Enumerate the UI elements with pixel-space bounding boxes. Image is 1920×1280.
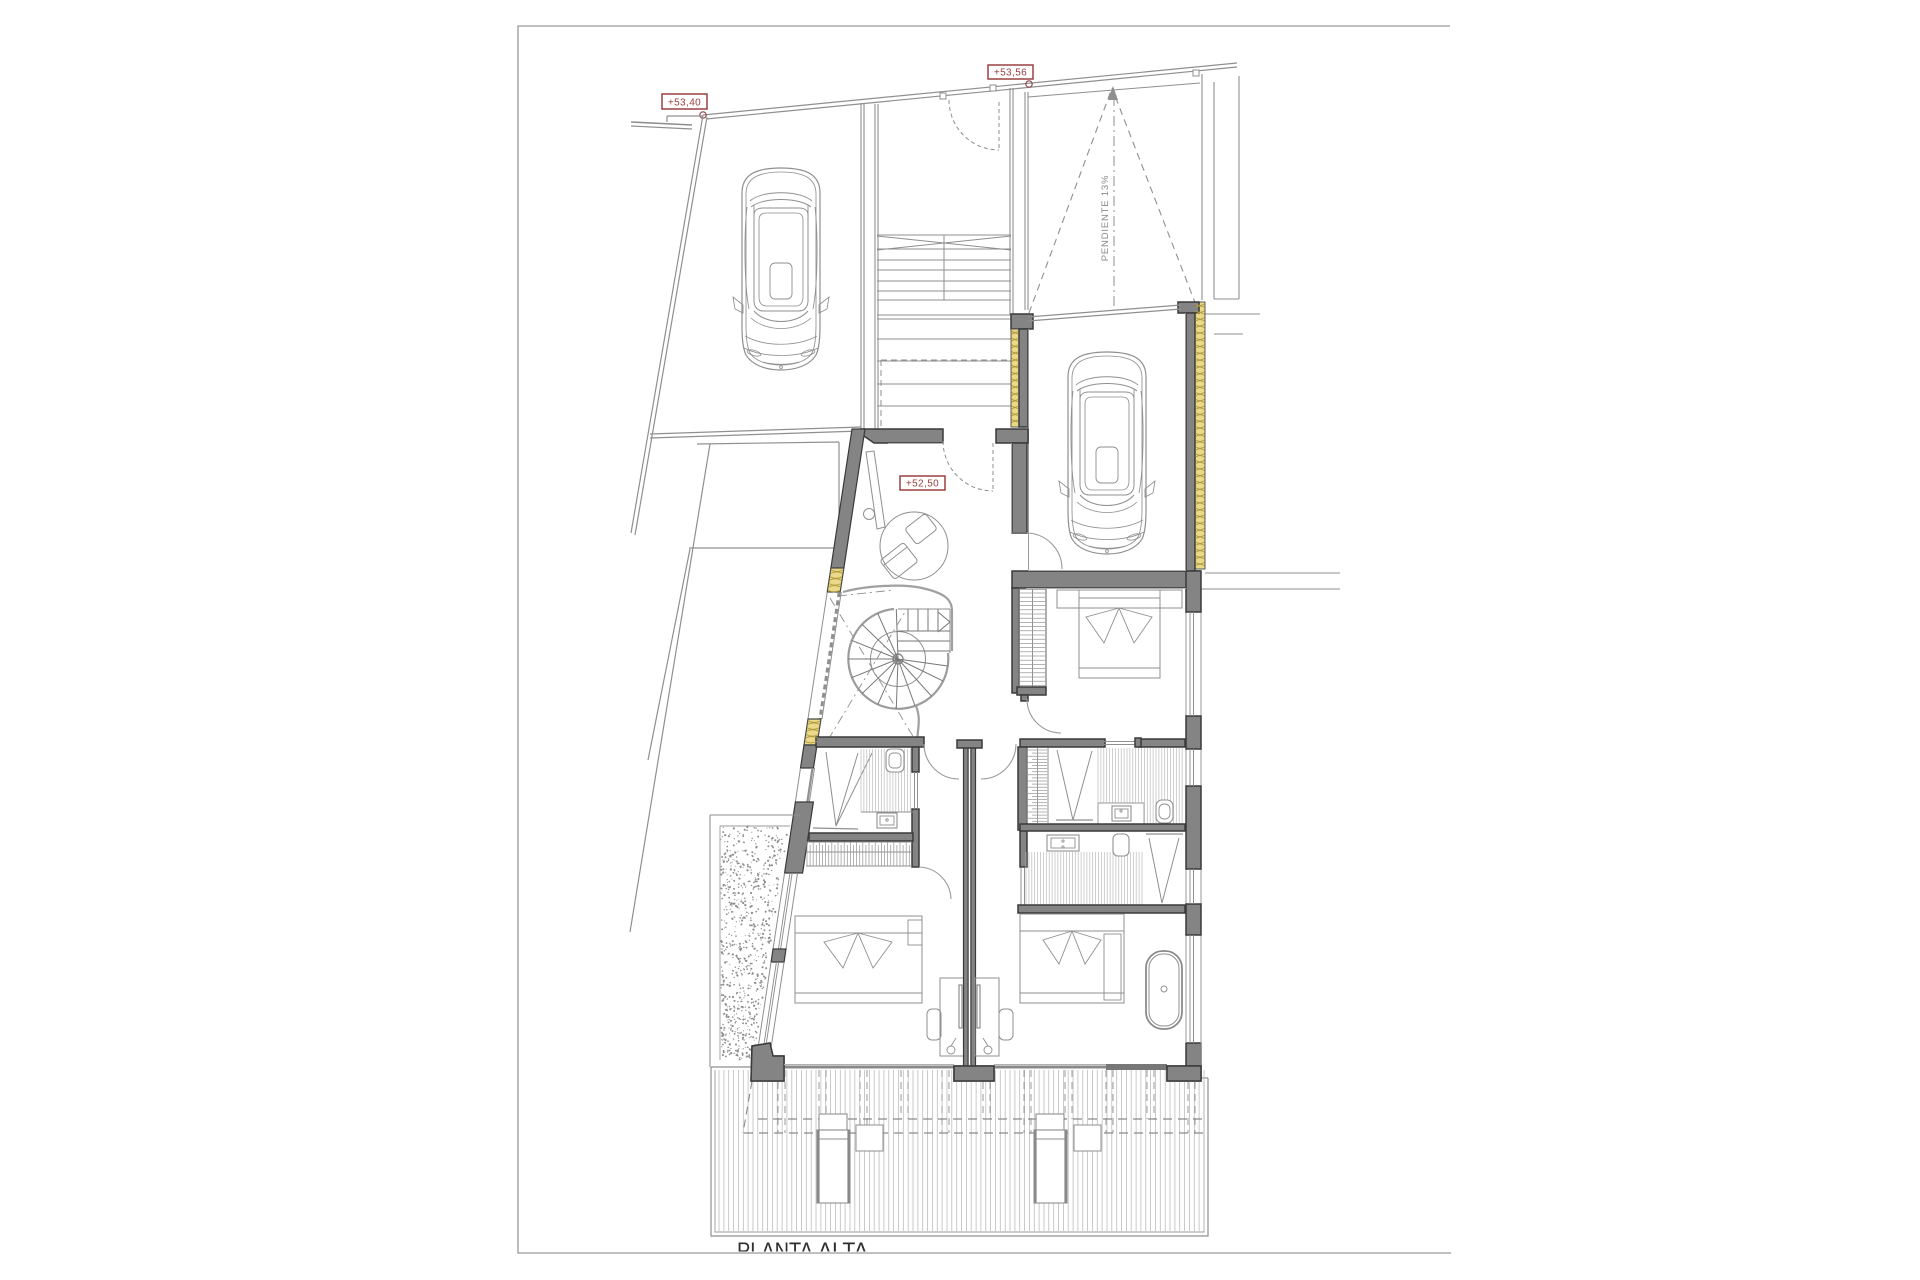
svg-text:+53,56: +53,56 [994,68,1027,79]
svg-text:PENDIENTE 13%: PENDIENTE 13% [1100,175,1111,261]
svg-text:PLANTA: PLANTA [737,1238,813,1263]
svg-text:+53,40: +53,40 [668,98,701,109]
svg-text:+52,50: +52,50 [906,479,939,490]
svg-text:ALTA: ALTA [818,1238,868,1263]
